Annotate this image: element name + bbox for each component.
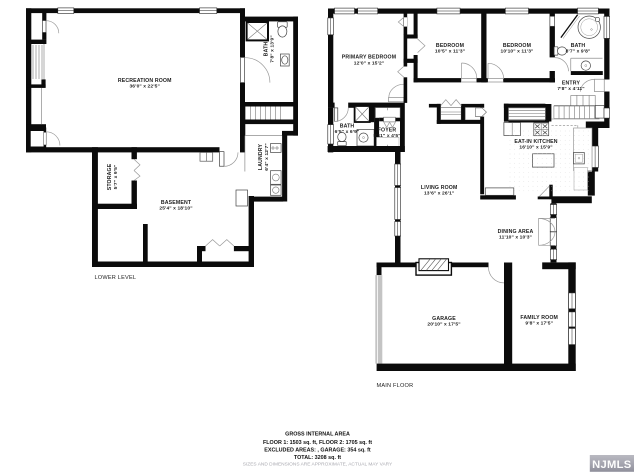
- svg-text:FAMILY ROOM: FAMILY ROOM: [520, 315, 558, 321]
- svg-text:RECREATION ROOM: RECREATION ROOM: [118, 78, 172, 84]
- svg-text:11’10" x 10’3": 11’10" x 10’3": [499, 234, 532, 240]
- svg-text:36’0" x 22’5": 36’0" x 22’5": [129, 84, 159, 90]
- svg-text:FOYER: FOYER: [378, 127, 397, 133]
- svg-text:BASEMENT: BASEMENT: [161, 200, 192, 206]
- svg-text:13’6" x 26’1": 13’6" x 26’1": [424, 191, 454, 197]
- svg-text:EXCLUDED AREAS: , GARAGE: 354: EXCLUDED AREAS: , GARAGE: 354 sq. ft: [264, 448, 371, 454]
- svg-text:TOTAL: 3208 sq. ft: TOTAL: 3208 sq. ft: [294, 455, 341, 461]
- svg-text:16’10" x 15’9": 16’10" x 15’9": [519, 145, 552, 151]
- svg-text:LOWER LEVEL: LOWER LEVEL: [95, 275, 137, 281]
- svg-text:BEDROOM: BEDROOM: [436, 43, 464, 49]
- svg-text:DINING AREA: DINING AREA: [498, 229, 534, 235]
- svg-text:NJMLS: NJMLS: [592, 459, 632, 471]
- svg-text:BATH: BATH: [340, 123, 355, 129]
- svg-text:5’11" x 4’5": 5’11" x 4’5": [373, 133, 400, 139]
- svg-text:7’8" x 13’9": 7’8" x 13’9": [270, 35, 276, 63]
- svg-text:MAIN FLOOR: MAIN FLOOR: [377, 383, 414, 389]
- svg-text:BEDROOM: BEDROOM: [503, 43, 531, 49]
- svg-text:9’8" x 17’5": 9’8" x 17’5": [525, 321, 553, 327]
- svg-text:PRIMARY BEDROOM: PRIMARY BEDROOM: [342, 54, 396, 60]
- svg-text:GARAGE: GARAGE: [432, 316, 456, 322]
- svg-text:12’0" x 15’2": 12’0" x 15’2": [354, 60, 384, 66]
- svg-text:BATH: BATH: [264, 42, 270, 57]
- svg-text:20’10" x 17’5": 20’10" x 17’5": [427, 322, 460, 328]
- svg-text:5’7" x 9’5": 5’7" x 9’5": [113, 165, 119, 190]
- svg-text:GROSS INTERNAL AREA: GROSS INTERNAL AREA: [285, 432, 350, 438]
- svg-text:FLOOR 1: 1503 sq. ft, FLOOR 2:: FLOOR 1: 1503 sq. ft, FLOOR 2: 1705 sq. …: [263, 440, 372, 446]
- svg-text:6’4" x 12’7": 6’4" x 12’7": [264, 143, 270, 171]
- svg-text:7’8" x 4’11": 7’8" x 4’11": [557, 86, 584, 92]
- svg-text:LAUNDRY: LAUNDRY: [258, 144, 264, 171]
- svg-text:10’5" x 11’3": 10’5" x 11’3": [435, 48, 465, 54]
- svg-text:8’7" x 9’8": 8’7" x 9’8": [566, 48, 591, 54]
- svg-text:STORAGE: STORAGE: [107, 163, 113, 190]
- svg-text:EAT-IN KITCHEN: EAT-IN KITCHEN: [514, 139, 557, 145]
- svg-text:25’4" x 18’10": 25’4" x 18’10": [159, 206, 192, 212]
- svg-text:6’5" x 6’9": 6’5" x 6’9": [335, 129, 360, 135]
- svg-text:LIVING ROOM: LIVING ROOM: [421, 185, 458, 191]
- svg-text:10’10" x 11’3": 10’10" x 11’3": [501, 48, 534, 54]
- svg-text:ENTRY: ENTRY: [562, 80, 581, 86]
- svg-text:BATH: BATH: [571, 43, 586, 49]
- svg-text:SIZES AND DIMENSIONS ARE APPRO: SIZES AND DIMENSIONS ARE APPROXIMATE, AC…: [243, 461, 393, 467]
